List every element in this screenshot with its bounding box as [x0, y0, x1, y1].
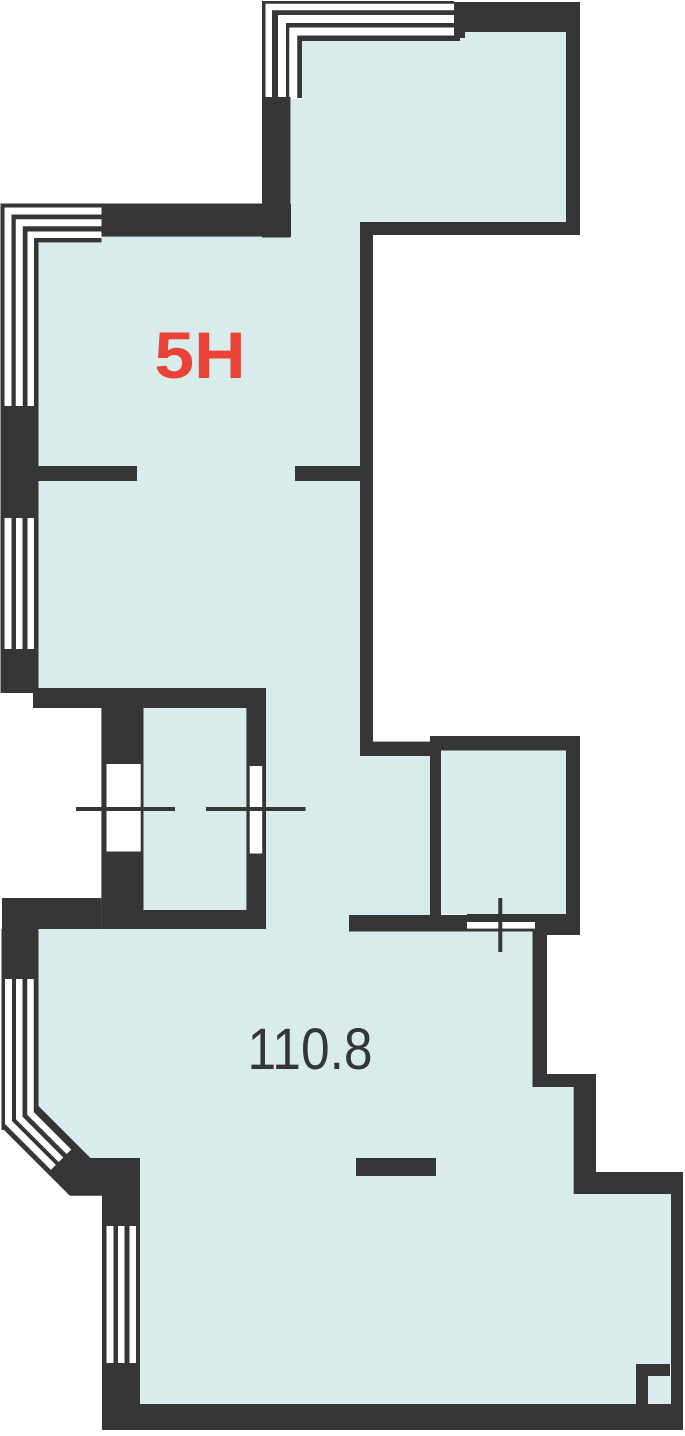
svg-text:5Н: 5Н	[154, 319, 245, 393]
svg-text:110.8: 110.8	[247, 1016, 372, 1082]
